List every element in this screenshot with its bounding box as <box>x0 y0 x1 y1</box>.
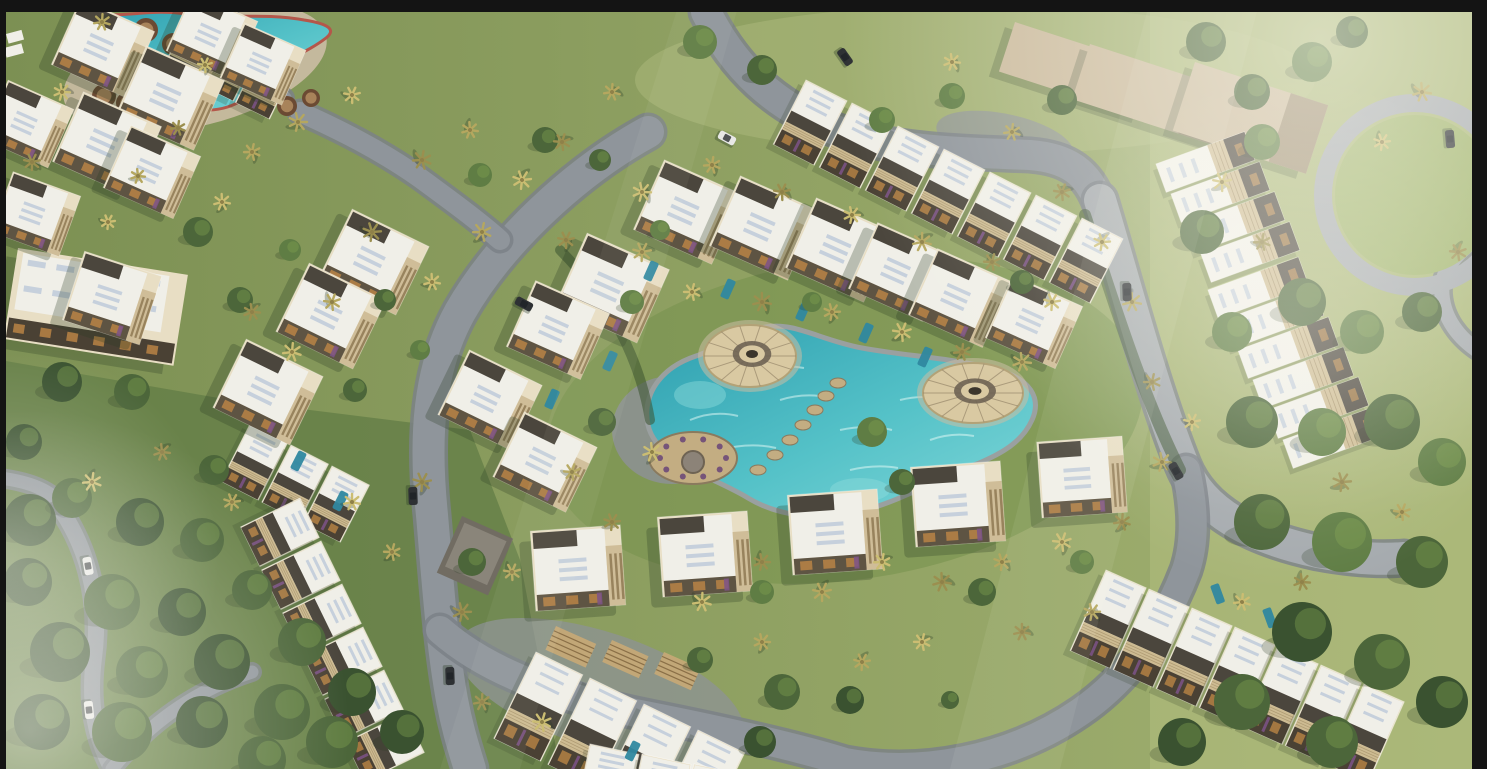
lounge-seat <box>663 466 669 472</box>
villa <box>645 511 753 608</box>
window <box>800 561 813 571</box>
letterbox-right <box>1472 0 1487 769</box>
villa <box>775 489 883 586</box>
aerial-render-figure <box>0 0 1487 769</box>
aerial-community-render <box>0 0 1487 769</box>
letterbox-left <box>0 0 6 769</box>
stepping-stone <box>818 391 834 401</box>
letterbox-top <box>0 0 1487 12</box>
stepping-stone <box>830 378 846 388</box>
lounge-seat <box>700 474 706 480</box>
bougainvillea <box>854 556 860 568</box>
car <box>406 485 418 505</box>
lounge-seat <box>657 455 663 461</box>
stepping-stone <box>782 435 798 445</box>
bougainvillea <box>977 528 983 540</box>
stepping-stone <box>807 405 823 415</box>
shallow-water <box>674 381 726 409</box>
window <box>13 323 25 334</box>
lounge-seat <box>680 436 686 442</box>
stepping-stone <box>767 450 783 460</box>
window <box>146 344 158 355</box>
villa <box>898 461 1006 558</box>
bougainvillea <box>597 592 603 604</box>
window <box>670 583 683 593</box>
bougainvillea <box>724 578 730 590</box>
window <box>923 533 936 543</box>
car <box>443 665 455 685</box>
stepping-stone <box>795 420 811 430</box>
window <box>823 559 836 569</box>
roof-inset <box>912 466 957 485</box>
stepping-stone <box>750 465 766 475</box>
roof-inset <box>659 516 704 535</box>
window <box>693 581 706 591</box>
window <box>946 531 959 541</box>
fire-pit <box>682 451 704 473</box>
lounge-seat <box>717 466 723 472</box>
roof-inset <box>789 494 834 513</box>
window <box>39 328 51 339</box>
lounge-seat <box>663 444 669 450</box>
lounge-seat <box>700 436 706 442</box>
lounge-seat <box>680 474 686 480</box>
lounge-seat <box>717 444 723 450</box>
round-shade-canopy <box>698 320 802 392</box>
raft-top <box>305 92 316 103</box>
sunken-seating-lounge <box>649 432 737 484</box>
lounge-seat <box>723 455 729 461</box>
